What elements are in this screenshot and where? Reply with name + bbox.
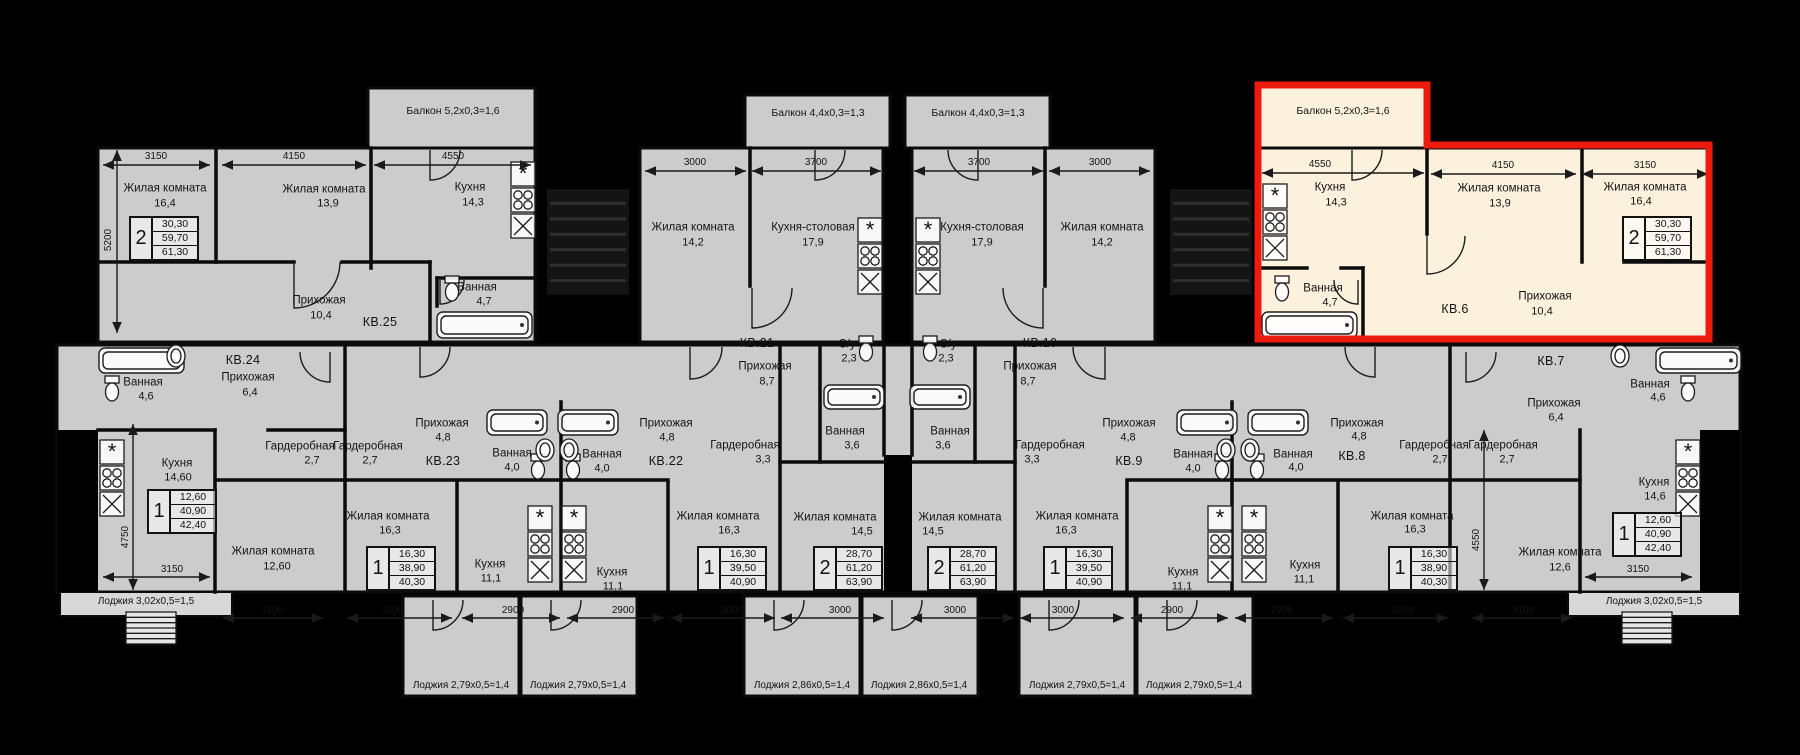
room-label-kv25: Кухня [455,182,486,194]
area-value: 61,30 [153,246,197,259]
room-label-kv21: Кухня-столовая [771,222,854,234]
area-table-kv24: 112,6040,9042,40 [147,489,217,534]
room-label-kv25: Жилая комната [282,184,365,196]
area-value: 16,30 [1067,548,1111,562]
room-area-kv23: 11,1 [481,574,502,585]
room-area-kv10: 2,3 [938,354,953,365]
room-area-kv8: 4,0 [1288,463,1303,474]
room-area-kv24: 6,4 [242,388,257,399]
room-label-kv7: Ванная [1630,379,1669,391]
dimension-label: 4550 [1309,160,1331,170]
dimension-label: 4150 [283,152,305,162]
room-label-kv6: Прихожая [1518,291,1571,303]
area-table-kv25: 230,3059,7061,30 [129,216,199,261]
dimension-label: 5200 [104,229,114,251]
room-label-kv8: Прихожая [1330,418,1383,430]
dimension-label: 3100 [261,606,283,616]
room-label-kv24: Кухня [162,458,193,470]
area-value: 42,40 [171,519,215,532]
rooms-count: 2 [929,548,951,589]
dimension-label: 3000 [684,158,706,168]
area-value: 40,90 [171,505,215,519]
area-value: 30,30 [153,218,197,232]
room-area-kv10: 8,7 [1020,377,1035,388]
room-label-kv6: Жилая комната [1603,182,1686,194]
dimension-label: 3000 [721,606,743,616]
apartment-number-kv6[interactable]: КВ.6 [1441,303,1468,316]
room-area-kv8: 11,1 [1294,575,1315,586]
area-value: 40,90 [721,576,765,589]
room-area-kv6: 14,3 [1325,198,1346,209]
apartment-number-kv8[interactable]: КВ.8 [1338,450,1365,463]
room-area-kv21: 8,7 [759,377,774,388]
room-area-kv8: 16,3 [1404,525,1425,536]
room-label-kv23: Ванная [492,448,531,460]
loggia-label: Лоджия 2,79х0,5=1,4 [530,681,626,691]
room-area-kv6: 13,9 [1489,199,1510,210]
room-label-kv10: Жилая комната [918,512,1001,524]
area-value: 59,70 [153,232,197,246]
room-area-kv9: 4,8 [1120,433,1135,444]
area-table-kv6: 230,3059,7061,30 [1622,216,1692,261]
room-area-kv22: 3,3 [755,455,770,466]
dimension-label: 3200 [1392,606,1414,616]
dimension-label: 3000 [944,606,966,616]
room-area-kv10: 3,6 [935,441,950,452]
dimension-label: 2900 [502,606,524,616]
room-area-kv21: 17,9 [802,238,823,249]
dimension-label: 3000 [829,606,851,616]
room-area-kv6: 16,4 [1630,197,1651,208]
room-label-kv10: Ванная [930,426,969,438]
room-label-kv10: Кухня-столовая [940,222,1023,234]
area-value: 16,30 [721,548,765,562]
rooms-count: 1 [699,548,721,589]
room-area-kv21: 14,5 [851,527,872,538]
room-area-kv21: 14,2 [682,238,703,249]
area-value: 40,90 [1067,576,1111,589]
dimension-label: 4550 [442,152,464,162]
dimension-label: 3200 [381,606,403,616]
dimension-label: 2900 [1161,606,1183,616]
area-value: 12,60 [171,491,215,505]
room-label-kv24: Жилая комната [231,546,314,558]
loggia-label: Лоджия 3,02х0,5=1,5 [1606,597,1702,607]
loggia-label: Лоджия 3,02х0,5=1,5 [98,597,194,607]
room-area-kv25: 16,4 [154,199,175,210]
room-label-kv6: Жилая комната [1457,183,1540,195]
room-area-kv22: 4,8 [659,433,674,444]
room-label-kv21: Жилая комната [793,512,876,524]
room-area-kv10: 14,2 [1091,238,1112,249]
dimension-label: 4150 [1492,161,1514,171]
area-value: 61,20 [837,562,881,576]
apartment-number-kv25[interactable]: КВ.25 [363,316,398,329]
room-label-kv8: Гардеробная [1399,440,1469,452]
apartment-number-kv9[interactable]: КВ.9 [1115,455,1142,468]
room-area-kv25: 4,7 [476,297,491,308]
area-table-kv10: 228,7061,2063,90 [927,546,997,591]
room-area-kv6: 4,7 [1322,298,1337,309]
room-label-kv25: Жилая комната [123,183,206,195]
room-area-kv23: 4,8 [435,433,450,444]
room-area-kv10: 14,5 [922,527,943,538]
room-area-kv22: 4,0 [594,464,609,475]
floor-plan-canvas: ********** КВ.25Жилая комната16,4Жилая к… [0,0,1800,755]
dimension-label: 2900 [612,606,634,616]
room-area-kv25: 14,3 [462,198,483,209]
area-table-kv21: 228,7061,2063,90 [813,546,883,591]
loggia-label: Лоджия 2,79х0,5=1,4 [1146,681,1242,691]
loggia-label: Лоджия 2,79х0,5=1,4 [1029,681,1125,691]
area-table-kv8: 116,3038,9040,30 [1388,546,1458,591]
area-value: 61,30 [1646,246,1690,259]
apartment-number-kv7[interactable]: КВ.7 [1537,355,1564,368]
room-label-kv9: Кухня [1168,567,1199,579]
room-label-kv7: Кухня [1639,477,1670,489]
dimension-label: 4750 [121,526,131,548]
room-area-kv8: 4,8 [1351,432,1366,443]
room-label-kv25: Ванная [457,282,496,294]
room-label-kv22: Гардеробная [710,440,780,452]
room-label-kv21: Ванная [825,426,864,438]
room-area-kv8: 2,7 [1432,455,1447,466]
dimension-label: 4550 [1472,529,1482,551]
area-value: 39,50 [721,562,765,576]
room-label-kv9: Гардеробная [1015,440,1085,452]
area-value: 38,90 [390,562,434,576]
room-area-kv9: 16,3 [1055,526,1076,537]
room-label-kv21: Прихожая [738,361,791,373]
room-label-kv22: Ванная [582,449,621,461]
room-label-kv10: Жилая комната [1060,222,1143,234]
dimension-label: 3100 [1512,606,1534,616]
room-area-kv21: 3,6 [844,441,859,452]
room-label-kv25: Прихожая [292,295,345,307]
area-value: 38,90 [1412,562,1456,576]
area-value: 59,70 [1646,232,1690,246]
room-label-kv6: Кухня [1315,182,1346,194]
room-label-kv23: Гардеробная [333,441,403,453]
area-value: 40,30 [1412,576,1456,589]
dimension-label: 3000 [1089,158,1111,168]
room-area-kv10: 17,9 [971,238,992,249]
area-value: 40,30 [390,576,434,589]
room-area-kv9: 4,0 [1185,464,1200,475]
area-table-kv23: 116,3038,9040,30 [366,546,436,591]
room-area-kv7: 14,6 [1644,492,1665,503]
room-area-kv7: 4,6 [1650,393,1665,404]
dimension-label: 3150 [161,565,183,575]
room-label-kv7: Прихожая [1527,398,1580,410]
area-value: 12,60 [1636,514,1680,528]
area-table-kv22: 116,3039,5040,90 [697,546,767,591]
rooms-count: 2 [815,548,837,589]
balcony-label-kv21: Балкон 4,4х0,3=1,3 [771,108,864,119]
room-label-kv9: Прихожая [1102,418,1155,430]
room-label-kv24: Гардеробная [265,441,335,453]
room-label-kv22: Прихожая [639,418,692,430]
area-value: 61,20 [951,562,995,576]
area-value: 39,50 [1067,562,1111,576]
room-area-kv7: 6,4 [1548,413,1563,424]
room-area-kv22: 16,3 [718,526,739,537]
balcony-label-kv10: Балкон 4,4х0,3=1,3 [931,108,1024,119]
room-area-kv23: 4,0 [504,463,519,474]
area-value: 63,90 [837,576,881,589]
room-label-kv8: Ванная [1273,449,1312,461]
rooms-count: 1 [368,548,390,589]
apartment-number-kv21[interactable]: КВ.21 [740,337,775,350]
room-label-kv8: Жилая комната [1370,511,1453,523]
room-label-kv10: Прихожая [1003,361,1056,373]
room-area-kv24: 14,60 [164,473,192,484]
area-value: 16,30 [390,548,434,562]
dimension-label: 3150 [145,152,167,162]
room-area-kv7: 2,7 [1499,455,1514,466]
apartment-number-kv23[interactable]: КВ.23 [426,455,461,468]
room-label-kv23: Жилая комната [346,511,429,523]
room-label-kv6: Ванная [1303,283,1342,295]
loggia-label: Лоджия 2,79х0,5=1,4 [413,681,509,691]
area-value: 30,30 [1646,218,1690,232]
dimension-label: 3150 [1634,161,1656,171]
room-label-kv21: Жилая комната [651,222,734,234]
area-table-kv9: 116,3039,5040,90 [1043,546,1113,591]
room-label-kv8: Кухня [1290,560,1321,572]
room-area-kv23: 2,7 [362,456,377,467]
area-value: 40,90 [1636,528,1680,542]
room-area-kv24: 12,60 [263,562,291,573]
floor-plan-labels: КВ.25Жилая комната16,4Жилая комната13,9К… [0,0,1800,755]
area-value: 28,70 [951,548,995,562]
area-value: 42,40 [1636,542,1680,555]
room-label-kv23: Кухня [475,559,506,571]
room-area-kv25: 13,9 [317,199,338,210]
apartment-number-kv22[interactable]: КВ.22 [649,455,684,468]
area-value: 16,30 [1412,548,1456,562]
room-area-kv9: 11,1 [1172,582,1193,593]
area-value: 28,70 [837,548,881,562]
room-area-kv24: 4,6 [138,392,153,403]
room-area-kv24: 2,7 [304,456,319,467]
room-label-kv7: Жилая комната [1518,547,1601,559]
rooms-count: 1 [1614,514,1636,555]
room-label-kv24: Ванная [123,377,162,389]
rooms-count: 2 [131,218,153,259]
dimension-label: 3150 [1627,565,1649,575]
room-area-kv23: 16,3 [379,526,400,537]
area-value: 63,90 [951,576,995,589]
room-label-kv24: Прихожая [221,372,274,384]
balcony-label-kv6: Балкон 5,2х0,3=1,6 [1296,106,1389,117]
balcony-label-kv25: Балкон 5,2х0,3=1,6 [406,106,499,117]
rooms-count: 1 [149,491,171,532]
loggia-label: Лоджия 2,86х0,5=1,4 [871,681,967,691]
room-label-kv23: Прихожая [415,418,468,430]
dimension-label: 3700 [968,158,990,168]
rooms-count: 1 [1390,548,1412,589]
room-label-kv21: С/у [838,339,855,351]
dimension-label: 3000 [1052,606,1074,616]
room-label-kv9: Ванная [1173,449,1212,461]
area-table-kv7: 112,6040,9042,40 [1612,512,1682,557]
room-area-kv25: 10,4 [310,311,331,322]
room-area-kv7: 12,6 [1549,563,1570,574]
room-area-kv22: 11,1 [603,582,624,593]
rooms-count: 2 [1624,218,1646,259]
apartment-number-kv10[interactable]: КВ.10 [1023,337,1058,350]
dimension-label: 3700 [805,158,827,168]
room-label-kv22: Жилая комната [676,511,759,523]
room-area-kv9: 3,3 [1024,455,1039,466]
rooms-count: 1 [1045,548,1067,589]
room-label-kv10: С/у [939,339,956,351]
apartment-number-kv24[interactable]: КВ.24 [226,354,261,367]
loggia-label: Лоджия 2,86х0,5=1,4 [754,681,850,691]
room-label-kv7: Гардеробная [1468,440,1538,452]
room-label-kv9: Жилая комната [1035,511,1118,523]
room-label-kv22: Кухня [597,567,628,579]
room-area-kv21: 2,3 [841,354,856,365]
room-area-kv6: 10,4 [1531,307,1552,318]
dimension-label: 2900 [1271,606,1293,616]
